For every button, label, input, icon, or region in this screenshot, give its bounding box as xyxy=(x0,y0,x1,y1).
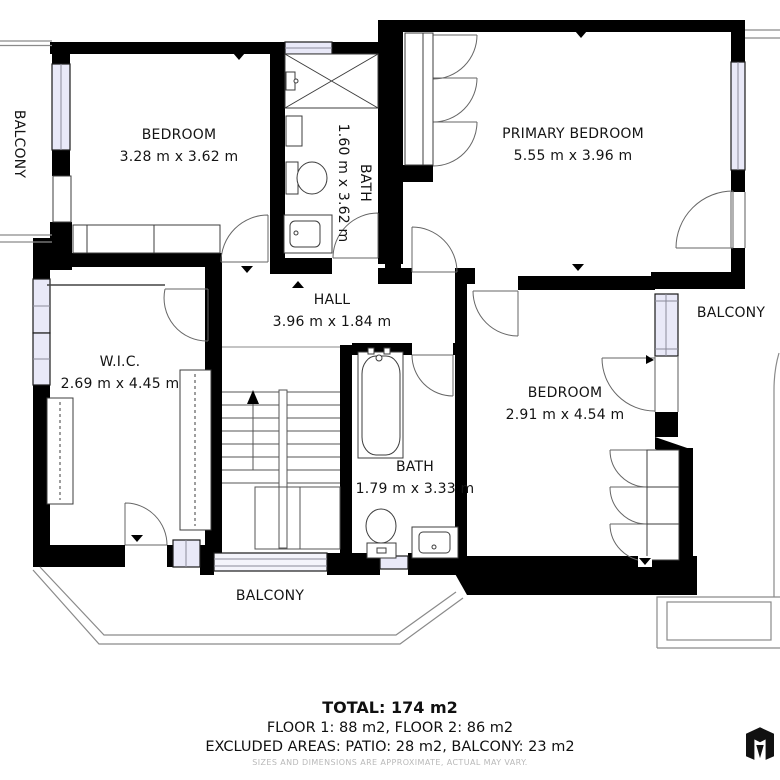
summary-total: TOTAL: 174 m2 xyxy=(0,698,780,717)
room-dims: 5.55 m x 3.96 m xyxy=(502,145,644,167)
room-label-bath-bottom: BATH 1.79 m x 3.33 m xyxy=(356,456,475,500)
room-label-wic: W.I.C. 2.69 m x 4.45 m xyxy=(61,351,180,395)
room-dims: 1.79 m x 3.33 m xyxy=(356,478,475,500)
room-dims: 2.69 m x 4.45 m xyxy=(61,373,180,395)
room-dims: 3.96 m x 1.84 m xyxy=(273,311,392,333)
balcony-label-left: BALCONY xyxy=(8,110,30,178)
room-name: BATH xyxy=(356,456,475,478)
stairs xyxy=(222,347,340,549)
room-name: W.I.C. xyxy=(61,351,180,373)
matterport-logo-icon xyxy=(746,726,774,764)
floorplan-page: BEDROOM 3.28 m x 3.62 m BATH 1.60 m x 3.… xyxy=(0,0,780,780)
room-name: HALL xyxy=(273,289,392,311)
room-label-bedroom-top-left: BEDROOM 3.28 m x 3.62 m xyxy=(120,124,239,168)
room-name: BEDROOM xyxy=(506,382,625,404)
room-dims: 2.91 m x 4.54 m xyxy=(506,404,625,426)
room-name: PRIMARY BEDROOM xyxy=(502,123,644,145)
room-dims: 1.60 m x 3.62 m xyxy=(332,124,354,243)
room-label-primary-bedroom: PRIMARY BEDROOM 5.55 m x 3.96 m xyxy=(502,123,644,167)
room-dims: 3.28 m x 3.62 m xyxy=(120,146,239,168)
summary-block: TOTAL: 174 m2 FLOOR 1: 88 m2, FLOOR 2: 8… xyxy=(0,698,780,767)
balcony-label-right: BALCONY xyxy=(697,302,765,324)
summary-excluded: EXCLUDED AREAS: PATIO: 28 m2, BALCONY: 2… xyxy=(0,739,780,755)
room-name: BATH xyxy=(354,124,376,243)
room-label-bath-top: BATH 1.60 m x 3.62 m xyxy=(332,124,376,243)
room-label-bedroom-right: BEDROOM 2.91 m x 4.54 m xyxy=(506,382,625,426)
balcony-label-bottom: BALCONY xyxy=(236,585,304,607)
summary-floors: FLOOR 1: 88 m2, FLOOR 2: 86 m2 xyxy=(0,720,780,736)
room-label-hall: HALL 3.96 m x 1.84 m xyxy=(273,289,392,333)
summary-disclaimer: SIZES AND DIMENSIONS ARE APPROXIMATE, AC… xyxy=(0,758,780,767)
room-name: BEDROOM xyxy=(120,124,239,146)
